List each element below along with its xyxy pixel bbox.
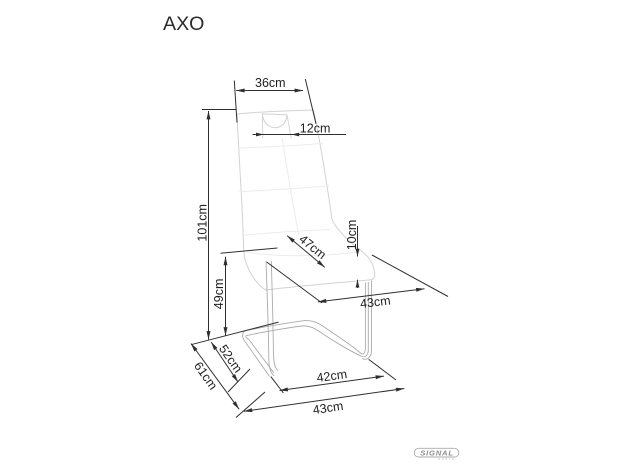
svg-text:36cm: 36cm <box>255 76 286 90</box>
svg-text:101cm: 101cm <box>196 204 210 242</box>
svg-text:10cm: 10cm <box>345 220 359 251</box>
svg-text:MEBLE: MEBLE <box>438 457 455 461</box>
svg-text:AXO: AXO <box>163 13 204 35</box>
svg-text:49cm: 49cm <box>212 279 226 310</box>
svg-text:12cm: 12cm <box>300 121 331 135</box>
